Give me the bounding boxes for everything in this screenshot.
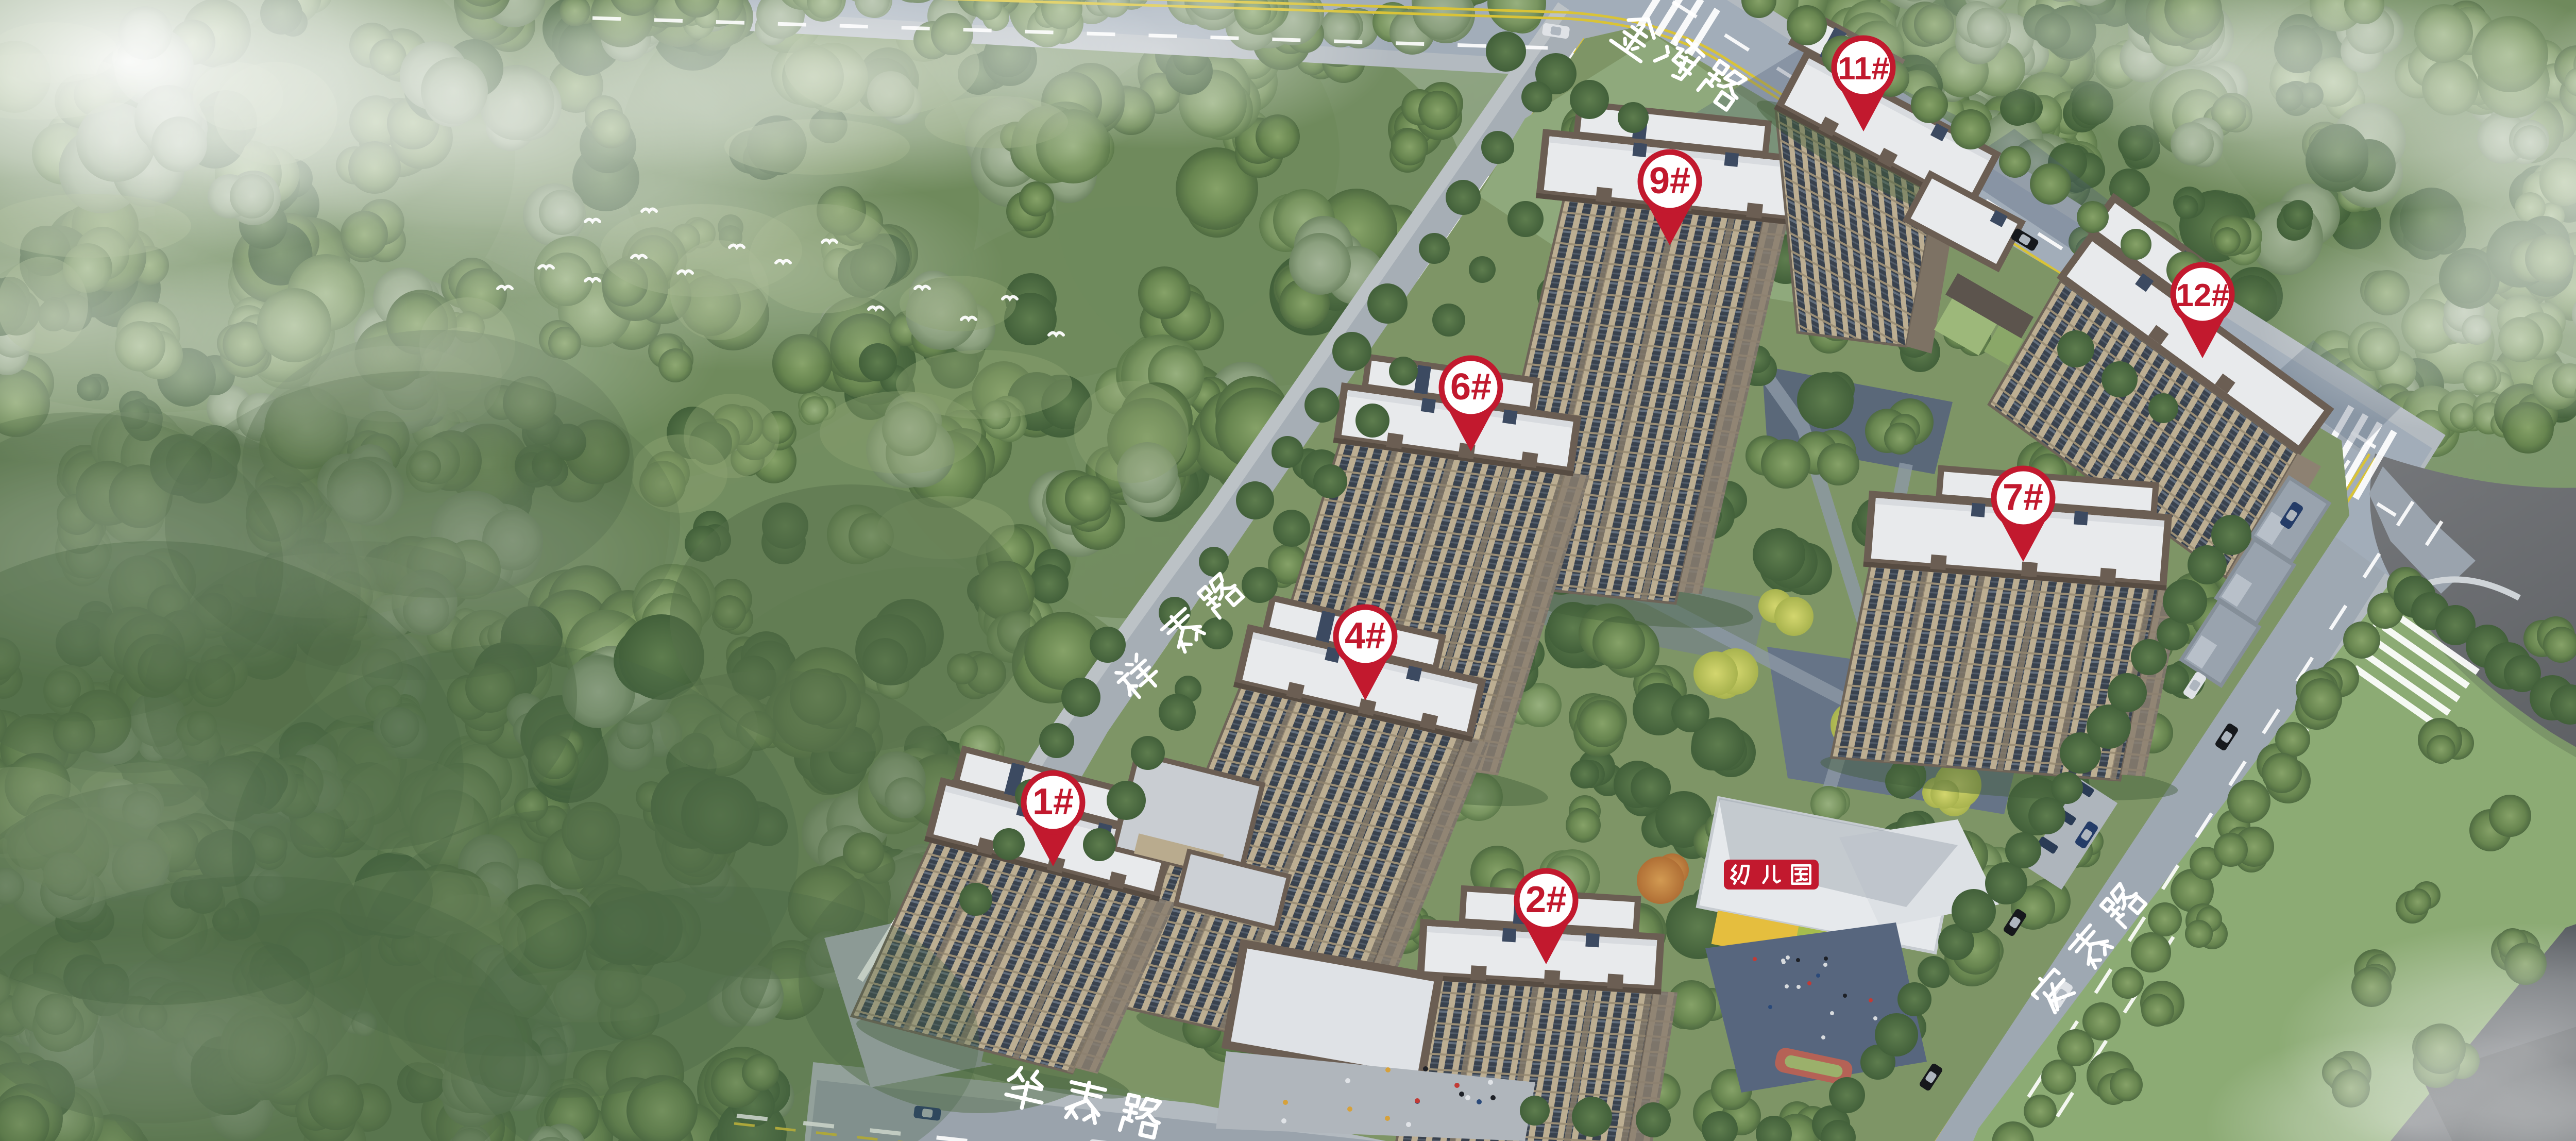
svg-text:6#: 6# bbox=[1450, 366, 1492, 408]
svg-text:7#: 7# bbox=[2003, 477, 2044, 518]
svg-text:2#: 2# bbox=[1526, 879, 1567, 920]
svg-text:11#: 11# bbox=[1838, 51, 1889, 87]
svg-text:1#: 1# bbox=[1032, 781, 1074, 823]
svg-text:12#: 12# bbox=[2176, 278, 2229, 313]
svg-text:9#: 9# bbox=[1649, 160, 1690, 202]
svg-text:4#: 4# bbox=[1345, 615, 1386, 657]
